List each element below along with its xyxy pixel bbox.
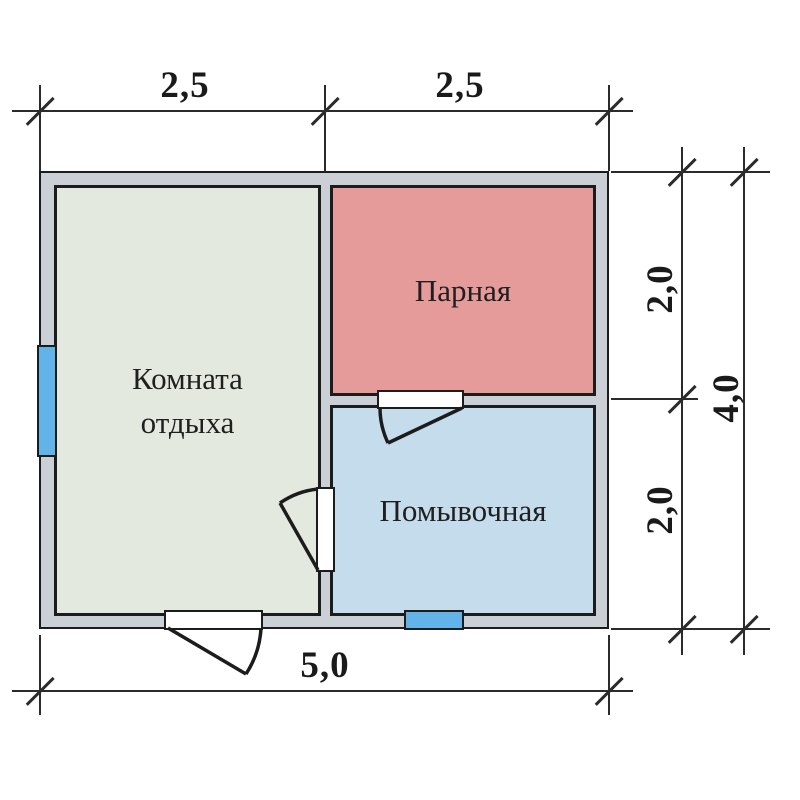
floor-plan-canvas: Комната отдыха Парная Помывочная 2,5 2,5 [0, 0, 800, 800]
ext-line-top-left [39, 85, 41, 171]
room-wash: Помывочная [330, 405, 596, 616]
dim-right-lower-label: 2,0 [639, 450, 683, 570]
entrance-door-leaf [168, 628, 246, 674]
room-steam-label: Парная [415, 269, 511, 313]
partition-door-opening [316, 487, 335, 572]
entrance-door-arc [246, 628, 261, 674]
ext-line-right-mid [611, 398, 698, 400]
dim-top-left-label: 2,5 [125, 64, 245, 108]
dim-right-total-label: 4,0 [705, 338, 749, 458]
window-left [37, 345, 57, 457]
room-wash-label: Помывочная [379, 489, 546, 533]
ext-line-bottom-left [39, 635, 41, 715]
entrance-door-opening [164, 610, 263, 630]
steam-door-opening [377, 390, 464, 409]
dim-right-upper-label: 2,0 [639, 229, 683, 349]
ext-line-bottom-right [608, 635, 610, 715]
ext-line-top-mid [324, 85, 326, 172]
dim-top-right-label: 2,5 [400, 64, 520, 108]
room-rest-label: Комната отдыха [98, 357, 278, 445]
dim-bottom-label: 5,0 [265, 644, 385, 688]
dim-line-bottom [12, 690, 633, 692]
room-steam: Парная [330, 185, 596, 396]
ext-line-top-right [608, 85, 610, 171]
room-rest: Комната отдыха [54, 185, 321, 616]
window-bottom [404, 610, 464, 630]
